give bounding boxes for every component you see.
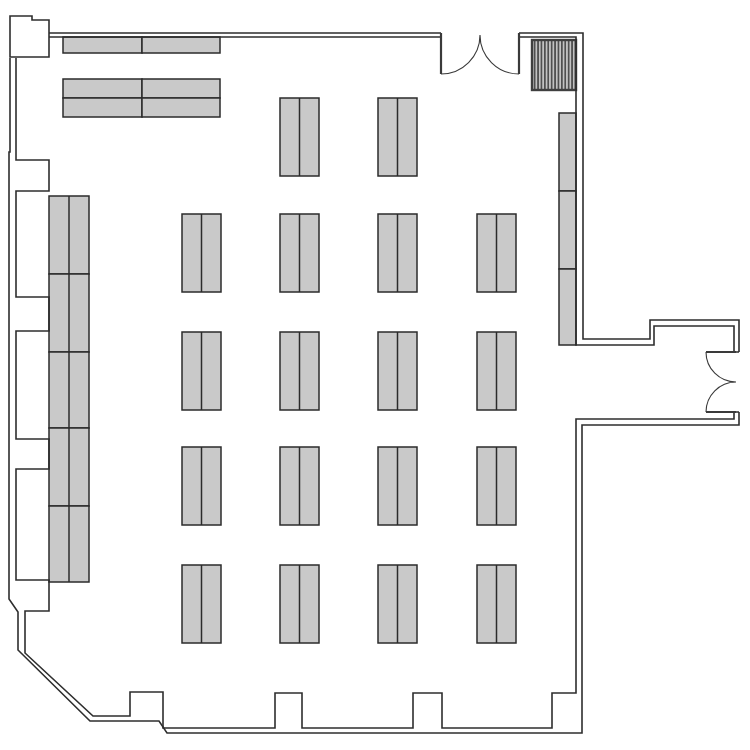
table [378,332,417,410]
table [280,447,319,525]
table [182,565,221,643]
table [63,98,142,117]
table [49,274,89,352]
table-rect [142,37,220,53]
table [182,332,221,410]
table [378,447,417,525]
table [142,79,220,98]
table [559,191,576,269]
table [49,428,89,506]
table [63,79,142,98]
table [49,196,89,274]
table [280,332,319,410]
table [142,98,220,117]
table [63,37,142,53]
table [559,113,576,191]
table [559,269,576,345]
tables-left-wall [49,196,89,582]
table-rect [559,191,576,269]
table [378,214,417,292]
stairs-hatch [532,40,576,90]
table-rect [63,37,142,53]
table [378,565,417,643]
table [378,98,417,176]
floor-plan-svg [0,0,750,750]
table-rect [63,98,142,117]
table [477,214,516,292]
table-rect [142,98,220,117]
table [280,98,319,176]
table-rect [559,113,576,191]
table-rect [63,79,142,98]
table [477,332,516,410]
table-rect [559,269,576,345]
table [182,214,221,292]
tables-right-wall [559,113,576,345]
table [49,506,89,582]
floor-plan [0,0,750,750]
table [280,214,319,292]
table [477,565,516,643]
table [280,565,319,643]
table [142,37,220,53]
table [477,447,516,525]
table [49,352,89,428]
table-rect [142,79,220,98]
table [182,447,221,525]
